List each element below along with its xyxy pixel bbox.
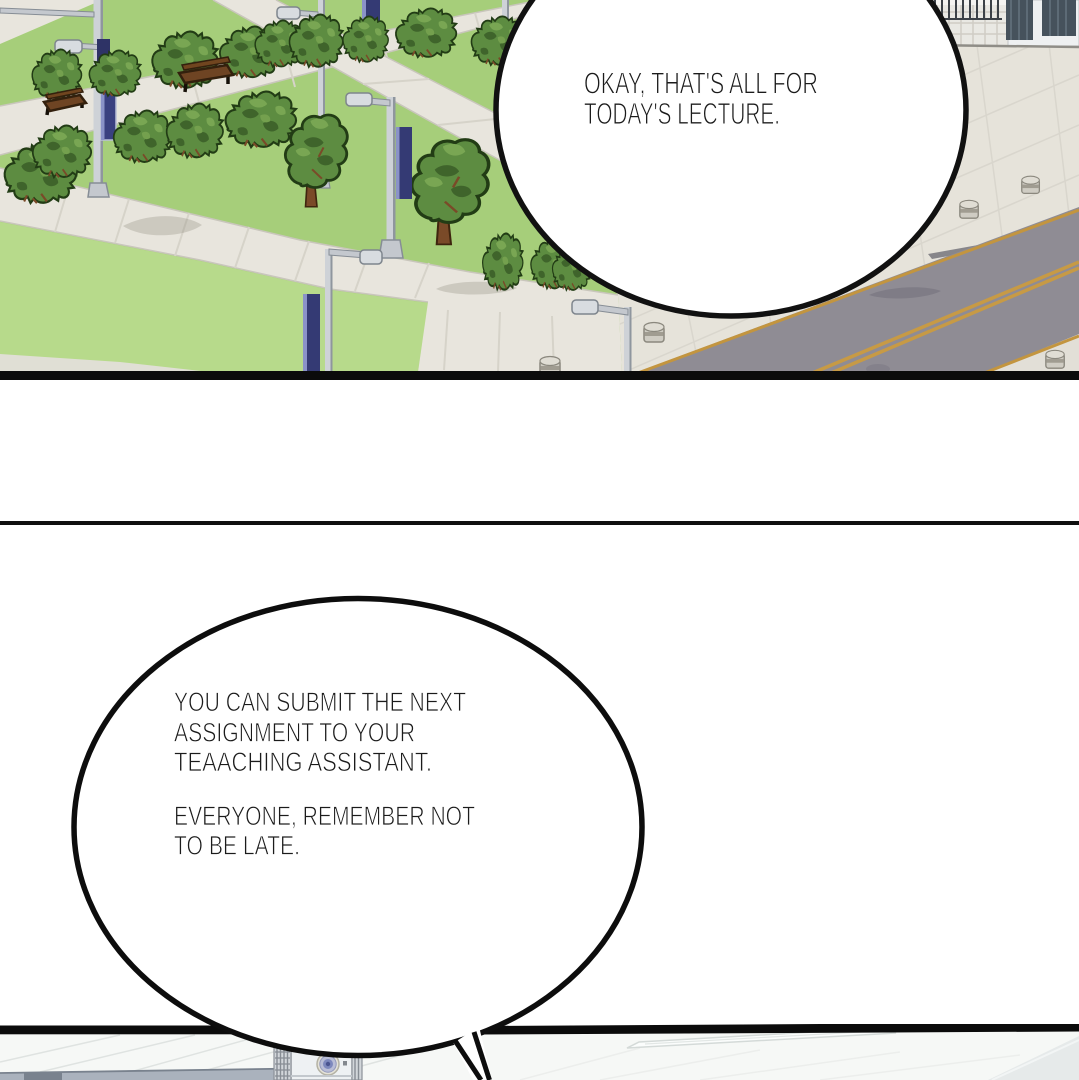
svg-text:ASSIGNMENT TO YOUR: ASSIGNMENT TO YOUR: [174, 718, 415, 748]
svg-text:TODAY'S LECTURE.: TODAY'S LECTURE.: [584, 97, 780, 131]
svg-text:YOU CAN SUBMIT THE NEXT: YOU CAN SUBMIT THE NEXT: [174, 687, 466, 717]
svg-text:TO BE LATE.: TO BE LATE.: [174, 831, 300, 861]
svg-text:OKAY, THAT'S ALL FOR: OKAY, THAT'S ALL FOR: [584, 67, 818, 101]
svg-text:TEAACHING ASSISTANT.: TEAACHING ASSISTANT.: [174, 747, 432, 777]
svg-text:EVERYONE, REMEMBER NOT: EVERYONE, REMEMBER NOT: [174, 801, 475, 831]
